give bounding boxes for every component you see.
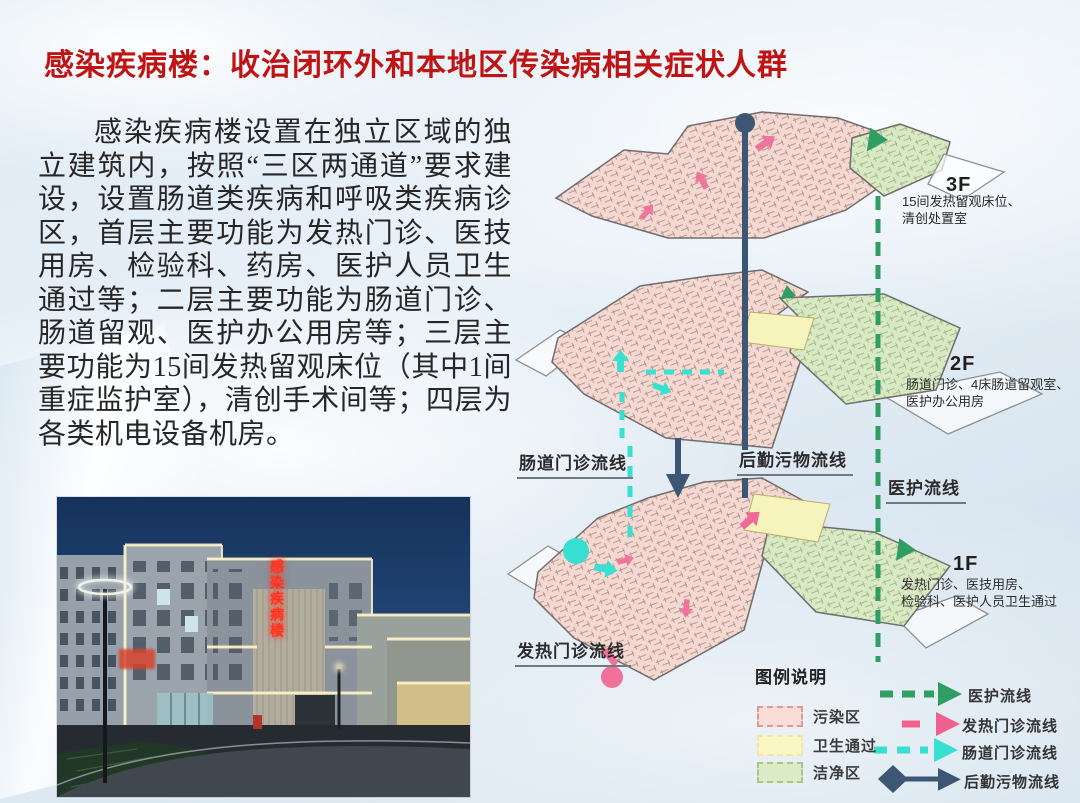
hygiene-pass-zone-2f	[742, 312, 814, 350]
fever-flow-label: 发热门诊流线	[515, 637, 631, 667]
legend-zone-clean: 洁净区	[757, 762, 861, 783]
legend-zone-label: 卫生通过	[813, 735, 877, 756]
floor-1f-label: 1F	[953, 553, 978, 576]
building-sign-small	[119, 649, 155, 669]
fever-flow-arrow	[636, 200, 658, 223]
center-windows	[213, 569, 251, 685]
clean-zone-swatch	[757, 762, 803, 783]
intestinal-entry-dot	[563, 538, 589, 564]
logistics-flow-line	[666, 113, 755, 498]
lit-window	[185, 616, 198, 632]
trash-bin	[253, 715, 262, 729]
building-sign-text: 感染疾病楼	[262, 557, 292, 641]
legend-medical-flow: 医护流线	[968, 685, 1032, 706]
legend-zone-label: 污染区	[813, 706, 861, 727]
logistics-flow-label: 后勤污物流线	[737, 446, 853, 476]
intestinal-flow-arrow	[612, 350, 629, 372]
medical-flow-arrow	[888, 538, 916, 566]
floodlit-wall	[397, 683, 470, 729]
tower-windows	[131, 561, 217, 689]
medical-flow-arrow	[776, 285, 796, 305]
legend-zone-contaminated: 污染区	[757, 706, 861, 727]
fever-flow-arrow	[736, 505, 765, 534]
legend-fever-flow: 发热门诊流线	[962, 715, 1058, 736]
building-photo-scene	[57, 497, 470, 797]
small-lamp-light	[335, 663, 343, 671]
fever-flow-arrow	[616, 552, 636, 569]
street-lamp-pole	[103, 589, 107, 783]
fever-flow-arrow	[752, 129, 780, 156]
annex-2f-left	[516, 330, 588, 376]
lit-window	[157, 589, 170, 605]
legend-zone-label: 洁净区	[813, 762, 861, 783]
body-paragraph: 感染疾病楼设置在独立区域的独立建筑内，按照“三区两通道”要求建设，设置肠道类疾病…	[38, 116, 512, 451]
floor-1f-description: 发热门诊、医技用房、 检验科、医护人员卫生通过	[901, 576, 1057, 610]
building-photo: 感染疾病楼	[57, 497, 470, 797]
hygiene-pass-zone-1f	[744, 494, 830, 542]
slide: 感染疾病楼：收治闭环外和本地区传染病相关症状人群 感染疾病楼设置在独立区域的独立…	[0, 0, 1080, 803]
neighbor-windows	[59, 563, 123, 721]
intestinal-flow-label: 肠道门诊流线	[517, 449, 633, 479]
intestinal-flow-arrow	[593, 558, 619, 580]
dark-doorway	[295, 695, 335, 729]
intestinal-flow-arrow	[650, 378, 674, 399]
fever-flow-arrow	[678, 599, 694, 618]
floor-2f-label: 2F	[950, 353, 975, 376]
contaminated-zone-swatch	[757, 706, 803, 727]
medical-flow-label: 医护流线	[886, 474, 966, 504]
floor-2f-description: 肠道门诊、4床肠道留观室、 医护办公用房	[906, 376, 1069, 410]
medical-flow-arrow	[858, 128, 888, 158]
legend-logistics-flow: 后勤污物流线	[964, 771, 1060, 792]
annex-1f-left	[508, 546, 576, 592]
legend-flow-samples	[874, 682, 962, 793]
legend-intestinal-flow: 肠道门诊流线	[962, 742, 1058, 763]
floor-3f-description: 15间发热留观床位、 清创处置室	[902, 193, 1020, 227]
legend-zone-hygiene: 卫生通过	[757, 735, 877, 756]
slide-title: 感染疾病楼：收治闭环外和本地区传染病相关症状人群	[44, 40, 1034, 84]
legend-title: 图例说明	[755, 663, 827, 688]
hygiene-pass-swatch	[757, 735, 803, 756]
fever-flow-arrow	[690, 168, 713, 192]
fever-entry-dot	[601, 666, 623, 688]
